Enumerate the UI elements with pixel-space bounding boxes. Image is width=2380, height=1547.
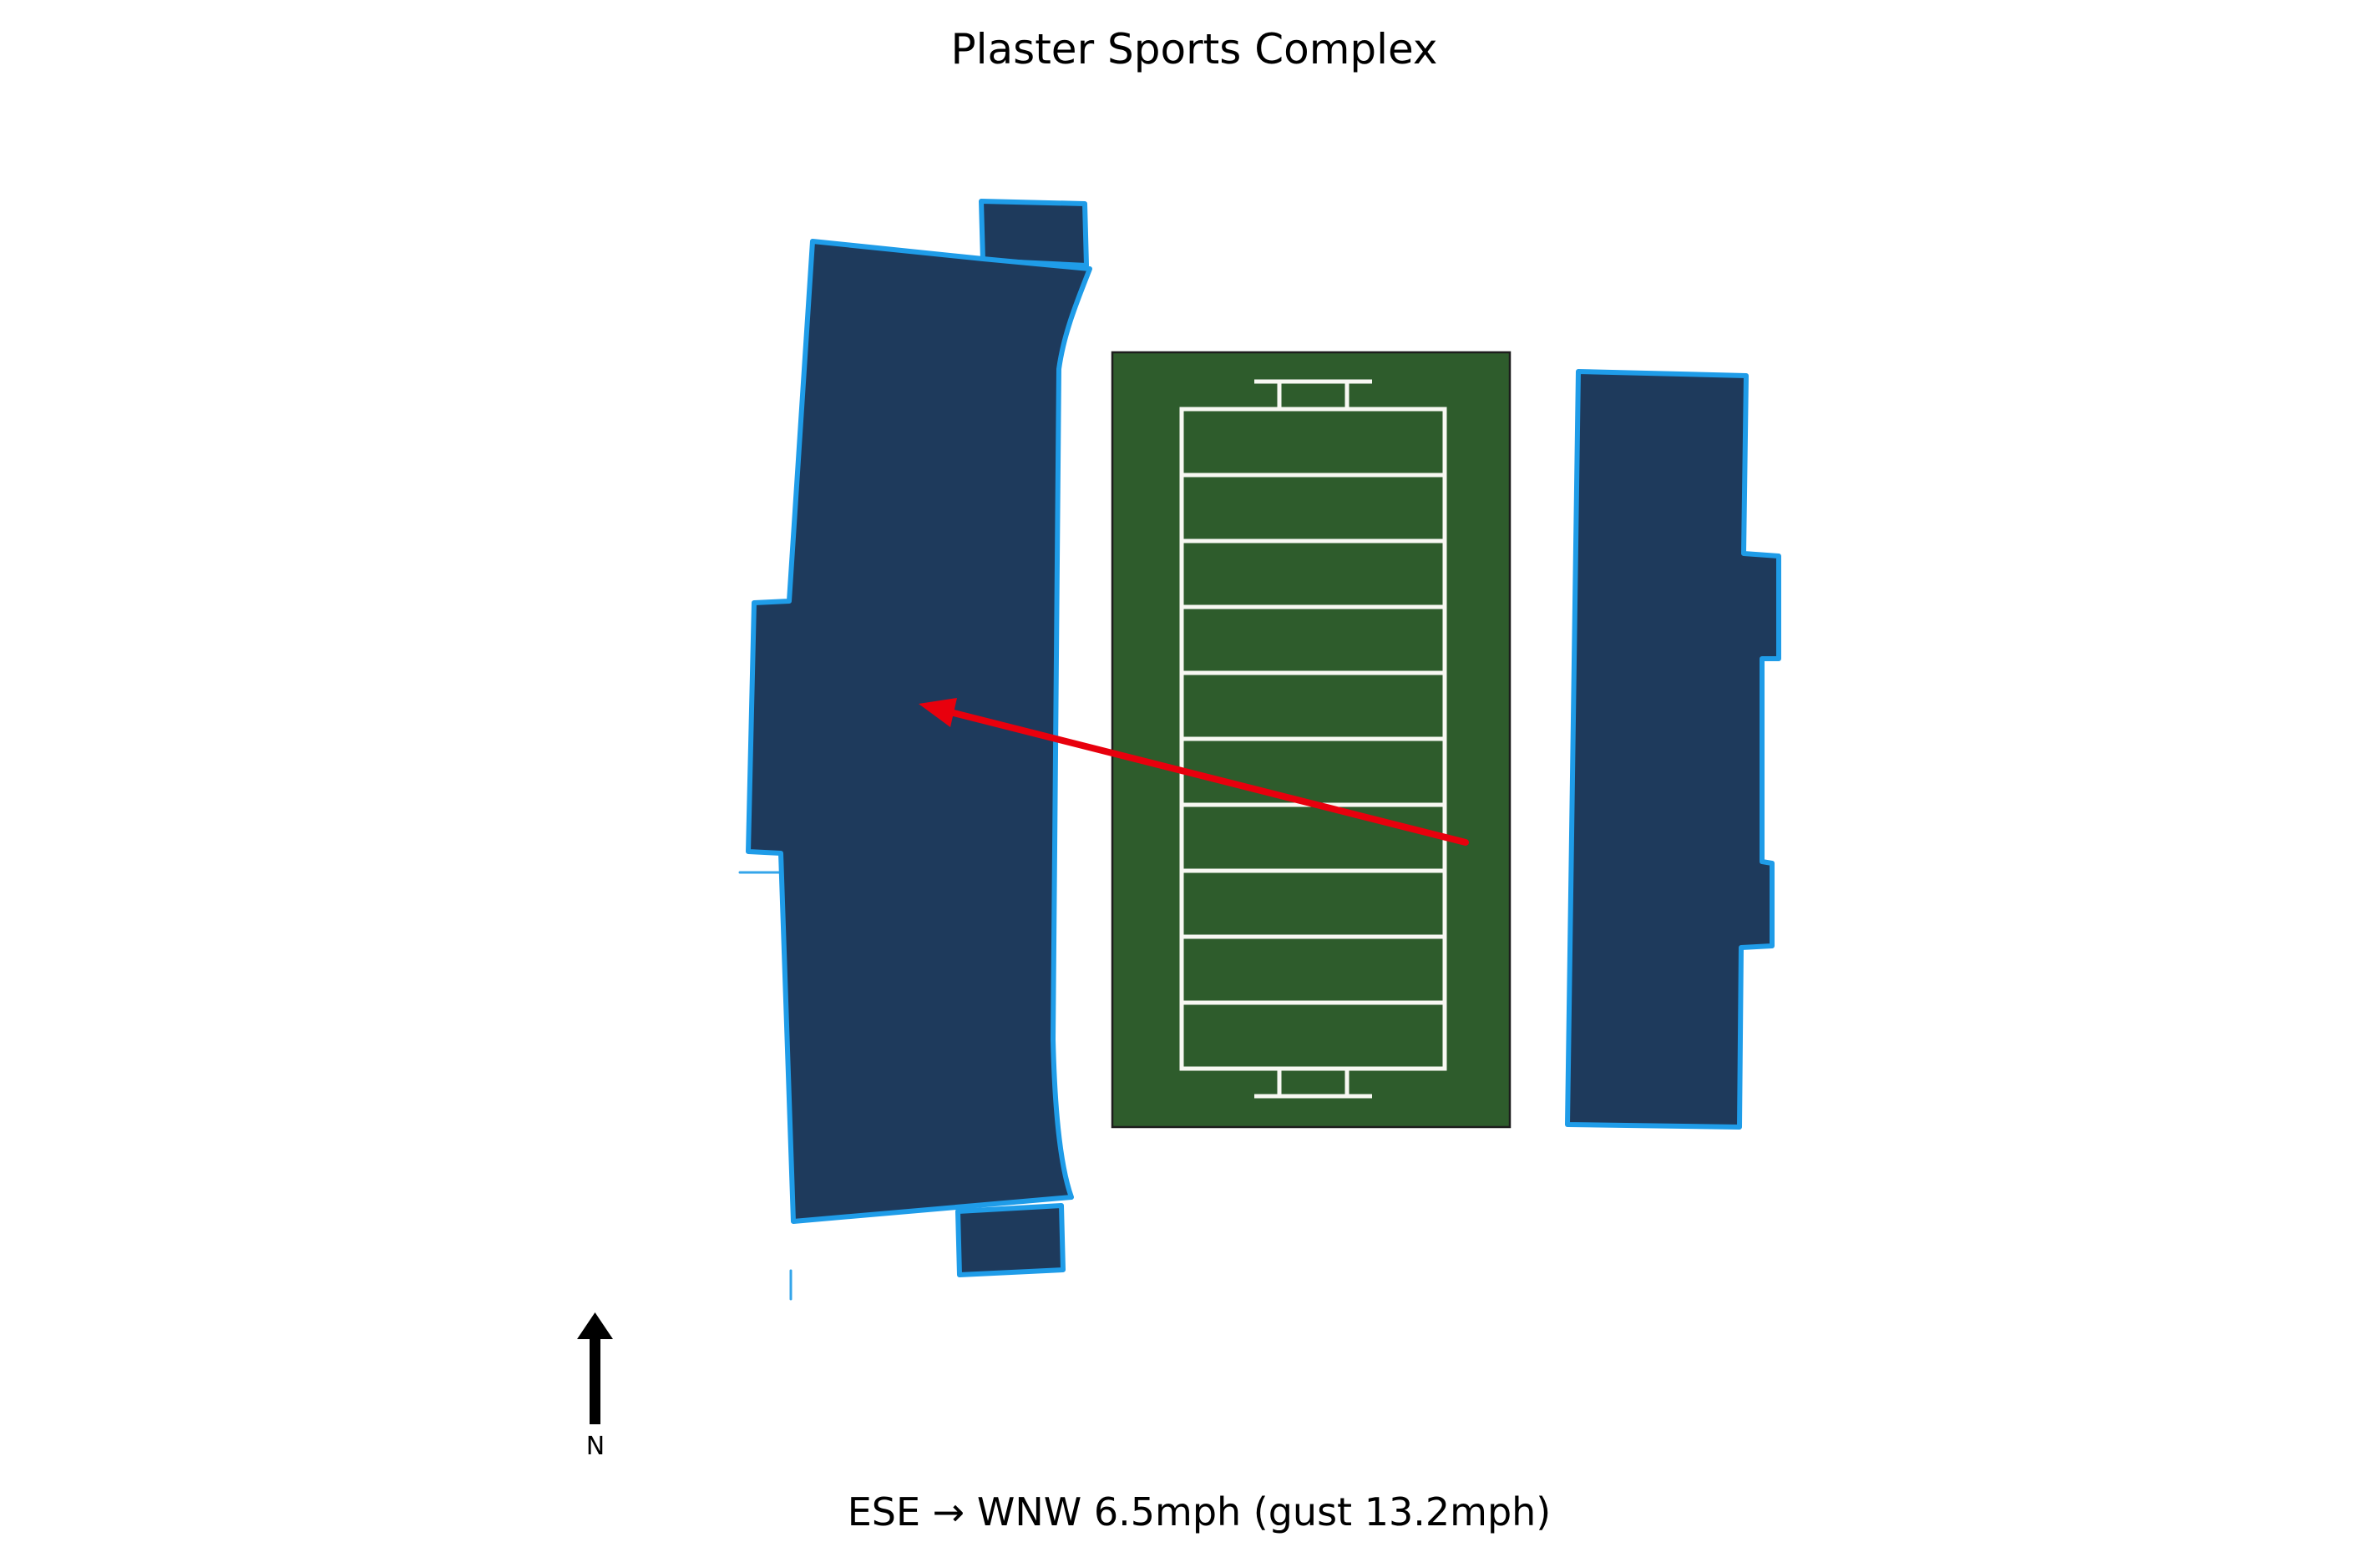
- wind-caption: ESE → WNW 6.5mph (gust 13.2mph): [848, 1489, 1552, 1534]
- north-arrow-head: [577, 1312, 613, 1339]
- east-stand-main: [1567, 372, 1779, 1127]
- north-arrow: N: [577, 1312, 613, 1461]
- site-map-svg: Plaster Sports Complex: [0, 0, 2380, 1547]
- north-label: N: [586, 1432, 605, 1461]
- east-stand: [1567, 372, 1779, 1127]
- figure-canvas: Plaster Sports Complex: [0, 0, 2380, 1547]
- west-stand-south-block: [958, 1206, 1063, 1275]
- page-title: Plaster Sports Complex: [950, 25, 1437, 73]
- west-stand: [740, 201, 1090, 1299]
- north-arrow-shaft: [590, 1336, 600, 1424]
- west-stand-north-block: [981, 201, 1086, 265]
- football-field: [1112, 352, 1510, 1127]
